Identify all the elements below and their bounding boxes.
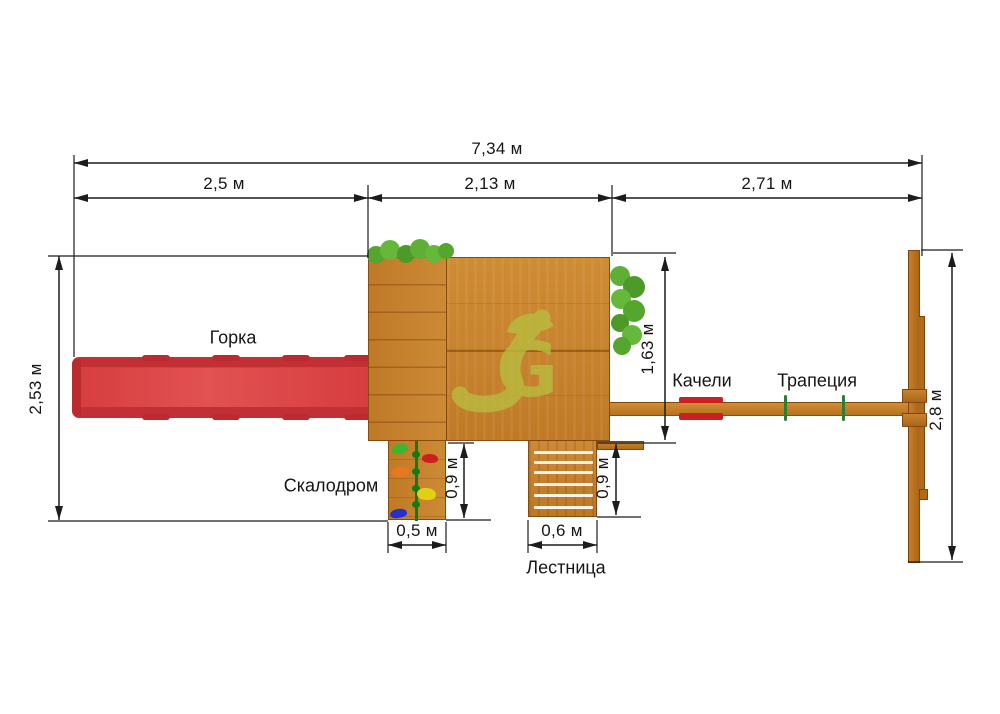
swing-post-notch bbox=[919, 489, 928, 500]
dim-total-width: 7,34 м bbox=[471, 139, 522, 159]
label-slide: Горка bbox=[210, 328, 257, 349]
slide-surface bbox=[76, 368, 368, 407]
dim-platform-width: 2,13 м bbox=[464, 174, 515, 194]
ladder-rung bbox=[534, 483, 593, 486]
dim-ladder-width: 0,6 м bbox=[541, 521, 583, 541]
swing-post-brace bbox=[919, 316, 925, 500]
ladder-rung bbox=[534, 461, 593, 464]
slide-rim-bump bbox=[212, 414, 240, 420]
rope-knot bbox=[412, 501, 420, 508]
slide-rim-bump bbox=[142, 355, 170, 361]
ladder-rung bbox=[534, 471, 593, 474]
label-ladder: Лестница bbox=[526, 558, 605, 579]
ladder-rung bbox=[534, 506, 593, 509]
label-climbing-wall: Скалодром bbox=[284, 476, 379, 497]
slide-rim-bump bbox=[142, 414, 170, 420]
dim-slide-width: 2,5 м bbox=[203, 174, 245, 194]
dim-climb-depth: 0,9 м bbox=[442, 457, 462, 499]
beam-clamp-top bbox=[902, 389, 927, 403]
platform-left-section bbox=[368, 257, 447, 441]
label-swing: Качели bbox=[672, 371, 731, 392]
trapeze-ring-right bbox=[842, 395, 845, 421]
slide-end-cap bbox=[72, 359, 81, 416]
slide-rim-bump bbox=[282, 355, 310, 361]
dim-climb-width: 0,5 м bbox=[396, 521, 438, 541]
climb-hold-yellow bbox=[416, 487, 436, 502]
climb-hold-red bbox=[422, 453, 439, 464]
dim-platform-depth: 1,63 м bbox=[638, 323, 658, 374]
slide-rim-bump bbox=[282, 414, 310, 420]
bush-top bbox=[366, 238, 456, 266]
dim-left-depth: 2,53 м bbox=[26, 363, 46, 414]
slide-shape bbox=[72, 357, 368, 418]
ladder bbox=[528, 440, 597, 517]
platform-support-strip bbox=[597, 441, 644, 450]
ladder-rung bbox=[534, 451, 593, 454]
watermark-letter: G bbox=[496, 325, 558, 414]
rope-knot bbox=[412, 468, 420, 475]
swing-mount-top bbox=[679, 397, 723, 403]
slide-rim-bump bbox=[212, 355, 240, 361]
label-trapeze: Трапеция bbox=[777, 371, 857, 392]
dim-right-depth: 2,8 м bbox=[926, 389, 946, 431]
dim-ladder-depth: 0,9 м bbox=[593, 457, 613, 499]
rope-knot bbox=[412, 451, 420, 458]
trapeze-ring-left bbox=[784, 395, 787, 421]
beam-clamp-bottom bbox=[902, 413, 927, 427]
climbing-wall bbox=[388, 440, 446, 520]
climb-hold-blue bbox=[390, 508, 408, 519]
swing-beam bbox=[608, 402, 910, 416]
brand-watermark: G bbox=[450, 292, 568, 414]
playground-top-view-diagram: G bbox=[0, 0, 1000, 714]
climb-hold-orange bbox=[391, 466, 410, 477]
climb-hold-green bbox=[391, 443, 408, 455]
ladder-rung bbox=[534, 494, 593, 497]
dim-swing-width: 2,71 м bbox=[741, 174, 792, 194]
swing-mount-bottom bbox=[679, 413, 723, 420]
